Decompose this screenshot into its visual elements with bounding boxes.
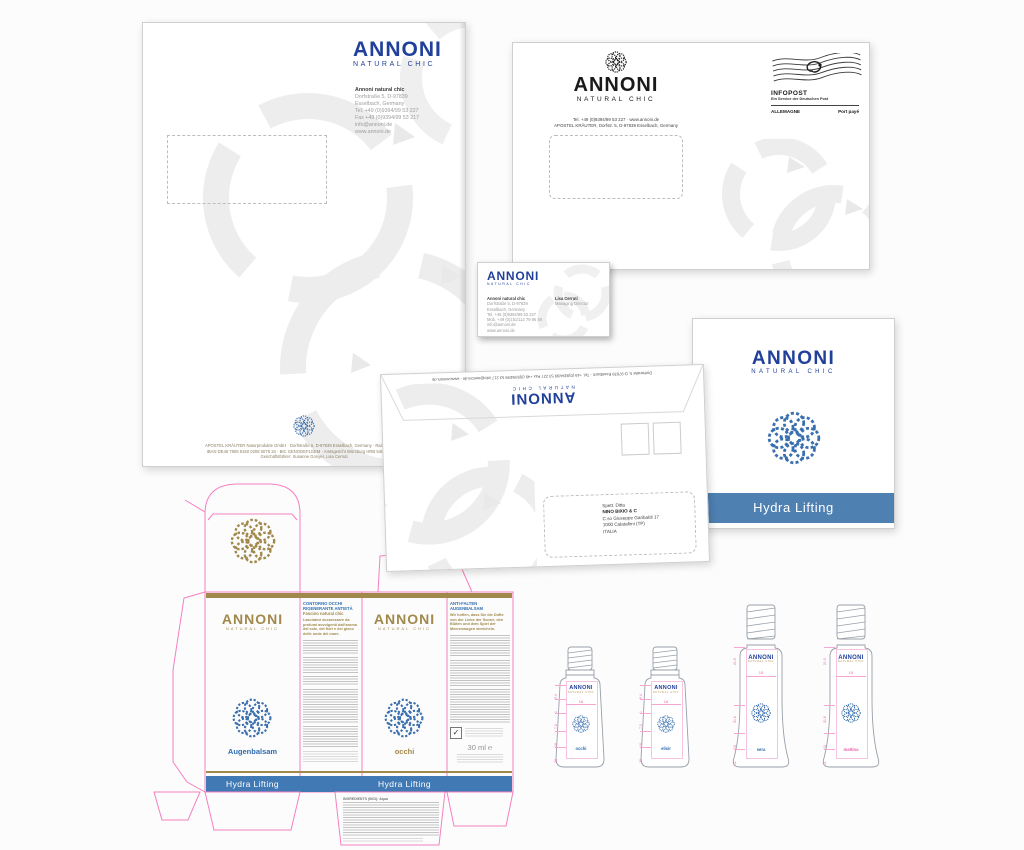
- bottle-small-elisir: 9.4 1 7.2 10 20 ANNONI NATURAL CHIC 16 e…: [638, 645, 692, 772]
- bottle-product-label: elisir: [651, 746, 681, 751]
- center-dimension: 16: [566, 699, 596, 704]
- panel-heading: CONTORNO OCCHI RIGENERANTE ANTIETÀ: [303, 601, 358, 611]
- body-text-block: [343, 802, 439, 836]
- flower-mark-icon: [293, 415, 315, 437]
- label-guide-line: [651, 704, 681, 705]
- flower-mark-icon: [657, 715, 675, 733]
- flower-mark-icon: [751, 703, 771, 723]
- dimension-label: 10: [554, 743, 558, 747]
- address-line: www.annoni.de: [355, 129, 460, 136]
- flap-logo: ANNONI NATURAL CHIC: [482, 382, 603, 407]
- letterhead-address-block: Annoni natural chic Dorfstraße 5, D-9783…: [355, 87, 460, 136]
- brand-tagline: NATURAL CHIC: [566, 692, 596, 694]
- dimension-label: 7.2: [554, 724, 558, 729]
- posthorn-icon: [807, 62, 821, 72]
- bottle-logo: ANNONI NATURAL CHIC: [836, 655, 866, 663]
- person-role: Managing Director: [555, 301, 603, 306]
- postal-waves-icon: [771, 53, 863, 85]
- brand-tagline: NATURAL CHIC: [651, 692, 681, 694]
- brand-logotype: ANNONI: [693, 349, 894, 368]
- folder-band: Hydra Lifting: [693, 493, 894, 523]
- infopost-port-paye: Port payé: [838, 109, 859, 114]
- volume-label: 30 ml ℮: [450, 743, 510, 752]
- center-dimension: 15: [746, 670, 776, 675]
- infopost-subtitle: Ein Service der Deutschen Post: [771, 97, 863, 101]
- flower-mark-icon: [572, 715, 590, 733]
- bottle-large-mattina: 21.5 31.6 10 11 ANNONI NATURAL CHIC 15 m…: [820, 603, 882, 773]
- body-text-block: [450, 689, 510, 723]
- infopost-frank-mark: INFOPOST Ein Service der Deutschen Post …: [771, 53, 863, 114]
- bottle-product-label: sera: [746, 747, 776, 752]
- flower-mark-icon: [384, 698, 424, 738]
- dimension-label: 10: [639, 743, 643, 747]
- brand-logotype: ANNONI: [205, 612, 300, 626]
- stamp-placeholder: [653, 422, 682, 455]
- stamp-placeholder: [621, 423, 650, 456]
- infopost-bottom-row: ALLEMAGNE Port payé: [771, 109, 859, 114]
- business-card: ANNONI NATURAL CHIC Annoni natural chic …: [477, 262, 610, 337]
- flower-mark-icon: [767, 411, 821, 465]
- ingredients-flap-text: INGREDIENTS (INCI): Aqua: [343, 797, 439, 843]
- dimension-label: 11: [733, 761, 737, 765]
- dimension-label: 9.4: [554, 694, 558, 699]
- flower-mark-icon: [230, 518, 276, 564]
- brand-logotype: ANNONI: [651, 686, 681, 692]
- panel-subheading: Fascino natural chic: [303, 611, 358, 616]
- dimension-label: 21.5: [733, 658, 737, 665]
- panel-heading: ANTI-FALTEN AUGENBALSAM: [450, 601, 510, 611]
- infopost-country: ALLEMAGNE: [771, 109, 800, 114]
- band-label: Hydra Lifting: [362, 776, 447, 792]
- stationery-presentation-canvas: ANNONI NATURAL CHIC Annoni natural chic …: [0, 0, 1024, 850]
- label-guide-line: [746, 676, 776, 677]
- band-label: Hydra Lifting: [205, 776, 300, 792]
- brand-logotype: ANNONI: [566, 686, 596, 692]
- bottle-logo: ANNONI NATURAL CHIC: [746, 655, 776, 663]
- address-line: Tel. +49 (0)9394/99 53 227: [355, 108, 460, 115]
- dimension-label: 1: [639, 711, 643, 713]
- label-guide-line: [566, 704, 596, 705]
- contact-line: APOSTEL KRÄUTER, Dorfstr. 5, D-97839 Ess…: [516, 123, 716, 129]
- flower-mark-icon: [841, 703, 861, 723]
- address-line: Fax +49 (0)9394/99 53 217: [355, 115, 460, 122]
- card-logo: ANNONI NATURAL CHIC: [487, 270, 539, 287]
- ingredients-heading: INGREDIENTS (INCI): Aqua: [343, 797, 439, 801]
- product-name: occhi: [362, 747, 447, 756]
- address-line: info@annoni.de: [355, 122, 460, 129]
- folder-band-label: Hydra Lifting: [753, 500, 834, 515]
- body-text-block: [457, 754, 503, 763]
- body-text-block: [303, 689, 358, 723]
- flower-watermark: [669, 139, 869, 269]
- bottle-product-label: mattina: [836, 747, 866, 752]
- brand-logotype: ANNONI: [362, 612, 447, 626]
- flower-mark-icon: [605, 51, 627, 73]
- bottle-small-occhi: 9.4 1 7.2 10 20 ANNONI NATURAL CHIC 16 o…: [553, 645, 607, 772]
- card-person-block: Lisa Cerruti Managing Director: [555, 296, 603, 307]
- dimension-label: 31.6: [733, 716, 737, 723]
- bottle-logo: ANNONI NATURAL CHIC: [566, 686, 596, 694]
- brand-tagline: NATURAL CHIC: [353, 60, 461, 70]
- center-dimension: 16: [651, 699, 681, 704]
- dimension-label: 31.6: [823, 716, 827, 723]
- eco-control-row: ✓: [450, 727, 510, 739]
- dimension-label: 21.5: [823, 658, 827, 665]
- envelope-logo: ANNONI NATURAL CHIC: [531, 75, 701, 104]
- envelope-dl: Dorfstraße 5, D-97839 Esselbach - Tel. +…: [380, 364, 710, 572]
- dimension-label: 20: [554, 759, 558, 763]
- envelope-c4: ANNONI NATURAL CHIC Tel. +49 (0)9394/99 …: [512, 42, 870, 270]
- window-guide: [549, 135, 683, 199]
- address-line: Esselbach, Germany: [355, 101, 460, 108]
- address-line: Dorfstraße 5, D-97839: [355, 94, 460, 101]
- body-text-block: [303, 676, 358, 686]
- bottle-logo: ANNONI NATURAL CHIC: [651, 686, 681, 694]
- body-text-block: [450, 635, 510, 657]
- body-text-block: [450, 660, 510, 686]
- dimension-label: 9.4: [639, 694, 643, 699]
- brand-logotype: ANNONI: [531, 75, 701, 95]
- brand-tagline: NATURAL CHIC: [205, 626, 300, 632]
- dimension-label: 10: [823, 745, 827, 749]
- letterhead-logo: ANNONI NATURAL CHIC: [353, 39, 461, 70]
- body-text-block: [303, 726, 358, 748]
- panel-german-text: ANTI-FALTEN AUGENBALSAM Wir hoffen, dass…: [450, 601, 510, 763]
- eco-control-checkbox-icon: ✓: [450, 727, 462, 739]
- center-dimension: 15: [836, 670, 866, 675]
- brand-tagline: NATURAL CHIC: [746, 661, 776, 663]
- bottle-large-sera: 21.5 31.6 10 11 ANNONI NATURAL CHIC 15 s…: [730, 603, 792, 773]
- panel-intro: Lasciatevi accarezzare da profumi avvolg…: [303, 618, 358, 636]
- address-window-guide: [167, 135, 327, 204]
- body-text-block: [303, 751, 358, 763]
- recipient-window: Spett. Ditta NINO BIXIO & C C.so Giusepp…: [543, 491, 697, 558]
- product-name: Augenbalsam: [205, 747, 300, 756]
- envelope-contact-lines: Tel. +49 (0)9394/99 53 227 · www.annoni.…: [516, 117, 716, 129]
- recipient-address: Spett. Ditta NINO BIXIO & C C.so Giusepp…: [602, 500, 691, 535]
- panel-augenbalsam-logo: ANNONI NATURAL CHIC: [205, 612, 300, 632]
- folder-logo: ANNONI NATURAL CHIC: [693, 349, 894, 376]
- dimension-label: 20: [639, 759, 643, 763]
- folder-cover: ANNONI NATURAL CHIC Hydra Lifting: [692, 318, 895, 529]
- brand-logotype: ANNONI: [353, 39, 461, 60]
- flower-mark-icon: [232, 698, 272, 738]
- body-text-block: [465, 728, 503, 737]
- panel-occhi-logo: ANNONI NATURAL CHIC: [362, 612, 447, 632]
- body-text-block: [303, 657, 358, 673]
- infopost-title: INFOPOST: [771, 90, 863, 97]
- card-line: www.annoni.de: [487, 328, 549, 333]
- brand-tagline: NATURAL CHIC: [836, 661, 866, 663]
- panel-intro: Wir hoffen, dass Sie die Düfte von der L…: [450, 613, 510, 631]
- brand-tagline: NATURAL CHIC: [531, 95, 701, 104]
- dimension-label: 7.2: [639, 724, 643, 729]
- dimension-label: 10: [733, 745, 737, 749]
- brand-tagline: NATURAL CHIC: [693, 368, 894, 376]
- dimension-label: 11: [823, 761, 827, 765]
- card-address-block: Annoni natural chic Dorfstraße 5, D-9783…: [487, 296, 549, 333]
- bottle-product-label: occhi: [566, 746, 596, 751]
- body-text-block: [303, 640, 358, 654]
- infopost-divider: [771, 105, 859, 106]
- label-guide-line: [836, 676, 866, 677]
- panel-italian-text: CONTORNO OCCHI RIGENERANTE ANTIETÀ Fasci…: [303, 601, 358, 763]
- body-text-block: [343, 838, 423, 843]
- company-name: Annoni natural chic: [355, 87, 460, 94]
- dimension-label: 1: [554, 711, 558, 713]
- brand-logotype: ANNONI: [487, 270, 539, 282]
